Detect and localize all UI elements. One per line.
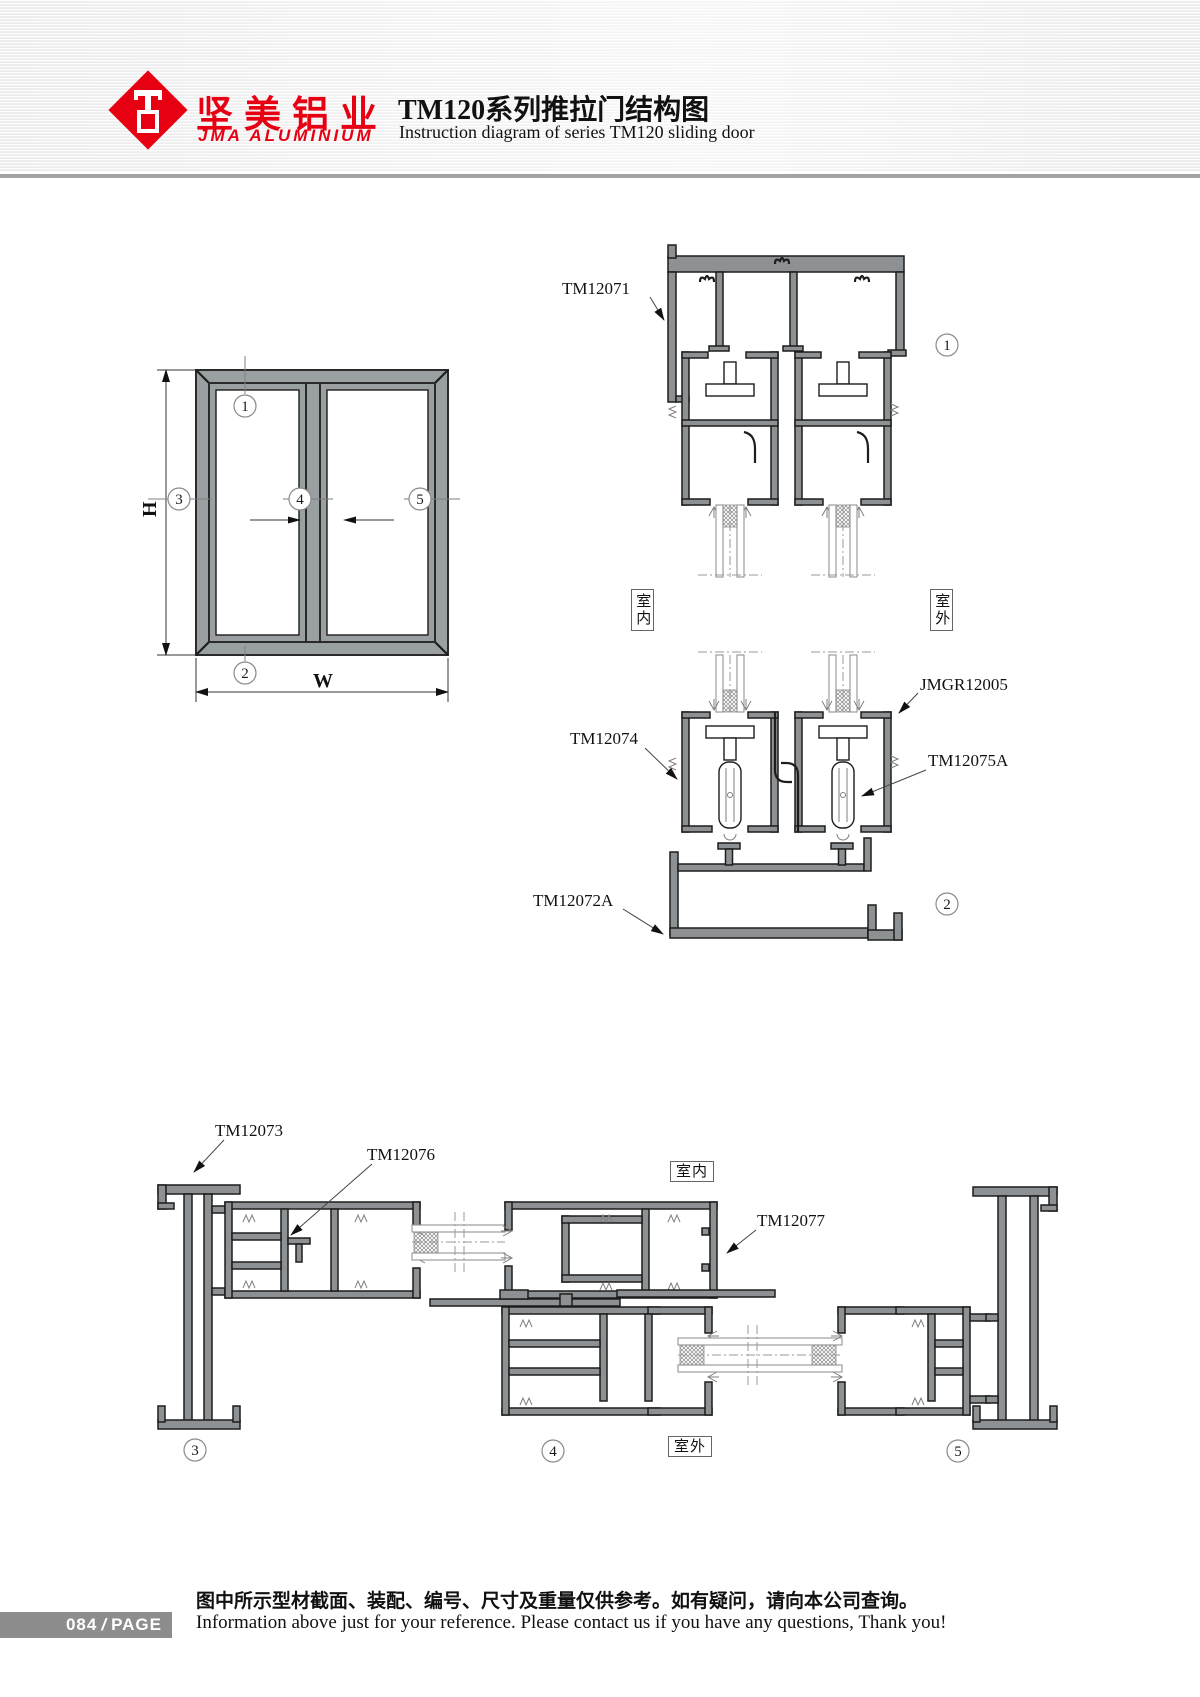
label-stile: TM12077 (757, 1211, 826, 1230)
footer-note-english: Information above just for your referenc… (196, 1612, 946, 1634)
detail-4-callout: 4 (549, 1444, 557, 1460)
callout-2: 2 (241, 666, 249, 682)
page-badge-slash: / (97, 1615, 111, 1634)
callout-4: 4 (296, 492, 304, 508)
elevation-diagram: H 1 2 (120, 300, 490, 720)
horizontal-section-diagram: TM12073 TM12076 TM12077 3 4 5 (120, 1080, 1080, 1480)
label-head: TM12071 (562, 279, 630, 298)
sill-frame-profile (670, 838, 902, 940)
middle-sash-profile (501, 1202, 717, 1298)
outdoor-label-horizontal: 室外 (668, 1436, 712, 1457)
label-glazing-bead: JMGR12005 (920, 675, 1008, 694)
upper-sash-profiles (225, 1202, 427, 1298)
callout-1: 1 (241, 399, 249, 415)
label-sill: TM12072A (533, 891, 614, 910)
label-interlock: TM12076 (367, 1145, 435, 1164)
lower-right-sash-profile (831, 1307, 990, 1415)
head-frame-profile (668, 245, 906, 402)
callout-5: 5 (416, 492, 424, 508)
header-divider-rule (0, 174, 1200, 178)
upper-glass-band (412, 1212, 505, 1272)
sash-bottom-profiles (669, 699, 898, 840)
catalog-page: 坚美铝业 JMA ALUMINIUM TM120系列推拉门结构图 Instruc… (0, 0, 1200, 1697)
glass-upper (698, 505, 875, 577)
door-frame (196, 370, 448, 655)
height-label: H (139, 501, 161, 517)
page-number: 084 (66, 1615, 97, 1634)
dimension-width: W (196, 658, 448, 702)
label-jamb: TM12073 (215, 1121, 283, 1140)
logo-profile-icon (120, 82, 176, 138)
glass-lower (698, 652, 875, 712)
page-badge: 084/PAGE (0, 1612, 172, 1638)
right-jamb-profile (973, 1187, 1057, 1429)
outdoor-label-vertical: 室外 (930, 589, 953, 631)
label-bead-a: TM12075A (928, 751, 1009, 770)
vertical-section-diagram: TM12071 JMGR12005 TM12074 TM12075A TM120… (480, 230, 1060, 960)
width-label: W (313, 670, 333, 692)
indoor-label-horizontal: 室内 (670, 1161, 714, 1182)
lower-glass-band (678, 1325, 842, 1385)
callout-3: 3 (175, 492, 183, 508)
page-label: PAGE (111, 1615, 162, 1634)
detail-5-callout: 5 (954, 1444, 962, 1460)
sash-top-profiles (669, 352, 898, 518)
detail-1-callout: 1 (943, 338, 951, 354)
label-sash-bottom: TM12074 (570, 729, 639, 748)
header-sheen (0, 0, 1200, 172)
footer-note-chinese: 图中所示型材截面、装配、编号、尺寸及重量仅供参考。如有疑问，请向本公司查询。 (196, 1586, 918, 1613)
indoor-label-vertical: 室内 (631, 589, 654, 631)
detail-3-callout: 3 (191, 1443, 199, 1459)
page-subtitle: Instruction diagram of series TM120 slid… (399, 122, 755, 143)
detail-2-callout: 2 (943, 897, 951, 913)
dimension-height: H (139, 370, 196, 655)
logo-english-name: JMA ALUMINIUM (198, 126, 374, 146)
